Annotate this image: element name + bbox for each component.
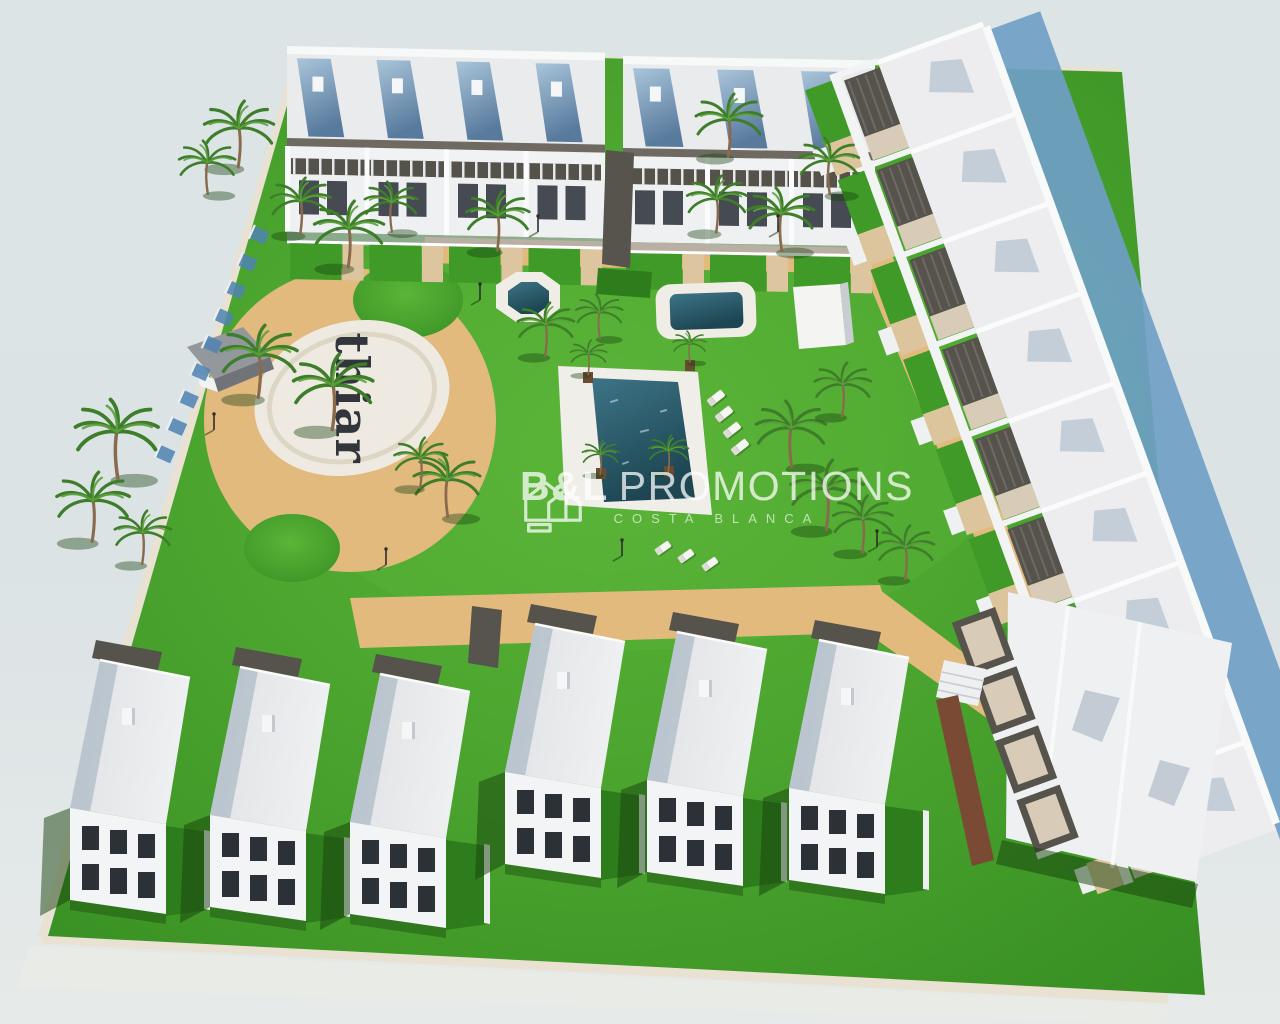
window <box>715 806 732 830</box>
window <box>390 844 407 868</box>
window <box>222 871 239 897</box>
front-path <box>343 244 364 280</box>
window <box>635 190 655 224</box>
window <box>687 840 704 866</box>
window <box>222 833 239 857</box>
window <box>418 886 435 912</box>
rear-facade <box>505 772 601 878</box>
window <box>362 878 379 904</box>
front-lawn <box>370 245 422 282</box>
stair-block <box>468 606 502 668</box>
main-pool <box>558 360 712 515</box>
window <box>278 841 295 865</box>
window <box>659 798 676 822</box>
front-path <box>422 246 443 282</box>
window <box>566 186 586 220</box>
rear-facade <box>789 788 885 894</box>
window <box>573 836 590 862</box>
render-canvas: thiar <box>0 0 1280 1024</box>
window <box>857 814 874 838</box>
window <box>715 844 732 870</box>
rear-facade <box>210 815 306 921</box>
window <box>82 826 99 850</box>
window <box>829 848 846 874</box>
window <box>110 830 127 854</box>
window <box>801 806 818 830</box>
window <box>687 802 704 826</box>
window <box>138 834 155 858</box>
window <box>138 872 155 898</box>
window <box>250 837 267 861</box>
window <box>538 185 558 219</box>
window <box>418 848 435 872</box>
stair-tower <box>602 150 634 268</box>
window <box>545 832 562 858</box>
aerial-render-scene: thiar <box>0 0 1280 1024</box>
window <box>857 852 874 878</box>
bottom-townhouses-middle <box>475 604 929 904</box>
window <box>390 882 407 908</box>
window <box>517 828 534 854</box>
window <box>250 875 267 901</box>
palm-tree <box>76 400 159 488</box>
front-path <box>767 256 788 292</box>
grass-island <box>244 514 340 582</box>
window <box>663 191 683 225</box>
fence-panel <box>154 444 176 465</box>
window <box>362 840 379 864</box>
rear-facade <box>70 808 166 914</box>
window <box>458 184 478 218</box>
hedge <box>596 268 652 298</box>
window <box>801 844 818 870</box>
window <box>278 879 295 905</box>
window <box>545 794 562 818</box>
rear-facade <box>647 780 743 886</box>
pavilion <box>793 282 854 349</box>
window <box>110 868 127 894</box>
window <box>517 790 534 814</box>
rear-facade <box>350 822 446 928</box>
bottom-townhouses-left <box>40 640 490 938</box>
backyard <box>885 806 927 896</box>
window <box>659 836 676 862</box>
window <box>829 810 846 834</box>
window <box>82 864 99 890</box>
window <box>573 798 590 822</box>
